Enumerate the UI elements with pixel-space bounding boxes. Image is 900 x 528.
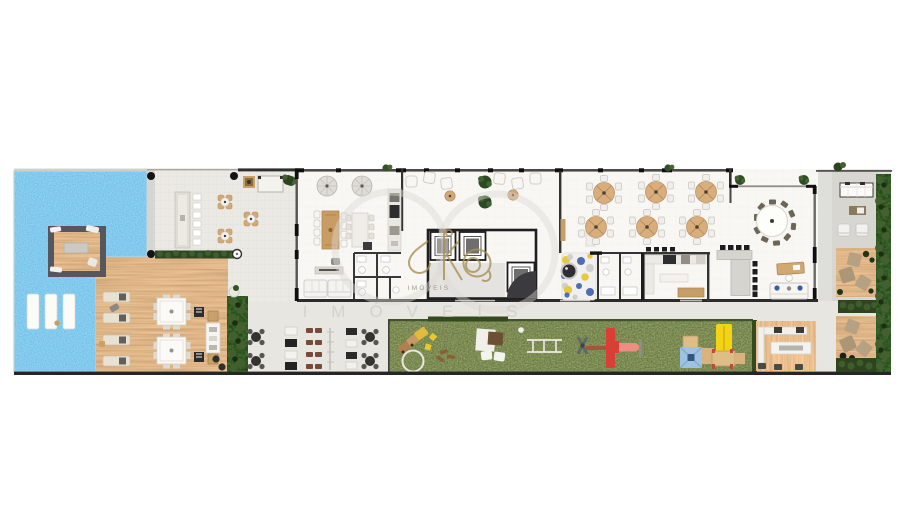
svg-text:IMÓVEIS: IMÓVEIS [408, 283, 451, 292]
svg-text:IMÓVEIS: IMÓVEIS [303, 302, 542, 321]
